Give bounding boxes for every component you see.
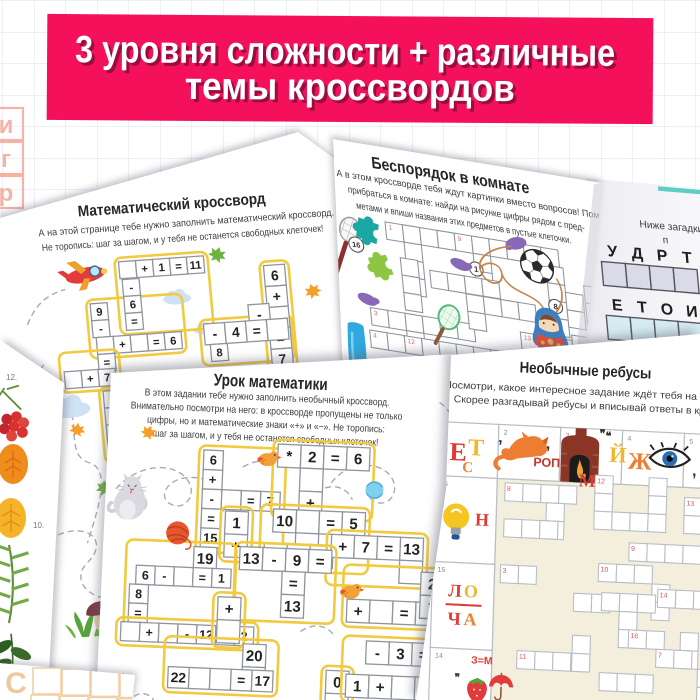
svg-text:Ж: Ж	[627, 449, 652, 476]
svg-text:=: =	[198, 571, 206, 585]
svg-text:,: ,	[498, 429, 503, 446]
svg-text:=: =	[399, 605, 409, 622]
svg-text:+: +	[145, 626, 153, 640]
svg-text:13: 13	[242, 550, 260, 568]
svg-text:6: 6	[129, 299, 136, 311]
svg-text:РОП: РОП	[533, 455, 560, 470]
svg-text:3: 3	[502, 568, 506, 575]
svg-text:12: 12	[597, 478, 605, 485]
svg-text:п: п	[662, 235, 669, 246]
svg-text:6: 6	[142, 568, 150, 582]
svg-text:С: С	[5, 667, 27, 700]
svg-text:+: +	[375, 679, 385, 696]
svg-text:1: 1	[232, 515, 242, 532]
svg-text:г: г	[1, 146, 11, 173]
svg-text:14: 14	[435, 653, 443, 660]
svg-text:Т: Т	[637, 299, 648, 317]
svg-text:,: ,	[546, 436, 551, 453]
svg-text:7: 7	[658, 652, 662, 659]
svg-text:З=М: З=М	[471, 655, 493, 667]
svg-text:О: О	[660, 301, 674, 319]
svg-text:6: 6	[210, 452, 218, 467]
svg-text:1: 1	[158, 262, 165, 274]
svg-text:1: 1	[353, 678, 363, 695]
svg-text:5: 5	[689, 439, 693, 446]
svg-text:+: +	[224, 601, 234, 618]
svg-text:Л: Л	[448, 580, 463, 601]
svg-text:22: 22	[170, 669, 186, 686]
svg-text:С: С	[462, 460, 473, 477]
svg-text:6: 6	[354, 451, 363, 468]
svg-text:❞: ❞	[454, 673, 460, 684]
svg-text:А: А	[463, 609, 477, 630]
svg-text:И: И	[685, 303, 698, 321]
svg-text:=: =	[330, 450, 340, 467]
svg-text:11: 11	[189, 259, 202, 272]
svg-text:9: 9	[293, 553, 302, 570]
svg-text:10: 10	[276, 513, 294, 531]
svg-text:+: +	[272, 288, 282, 305]
svg-text:=: =	[207, 511, 215, 526]
svg-text:=: =	[384, 540, 394, 557]
svg-text:Т: Т	[681, 250, 692, 268]
svg-text:8: 8	[216, 347, 223, 359]
svg-text:-: -	[162, 569, 167, 583]
svg-text:11: 11	[519, 654, 527, 661]
svg-text:14: 14	[660, 592, 668, 599]
svg-text:12: 12	[407, 338, 415, 346]
svg-text:и: и	[0, 112, 13, 139]
svg-text:Й: Й	[609, 442, 627, 468]
svg-text:10.: 10.	[33, 521, 44, 530]
svg-text:17: 17	[254, 673, 270, 690]
svg-text:16: 16	[352, 240, 361, 250]
svg-text:Е: Е	[611, 297, 623, 315]
svg-text:+: +	[338, 538, 348, 555]
svg-text:13: 13	[403, 541, 421, 559]
svg-text:7: 7	[104, 372, 111, 384]
svg-text:Т: Т	[468, 435, 485, 462]
svg-text:=: =	[252, 322, 262, 339]
svg-text:1: 1	[218, 572, 226, 586]
svg-text:Д: Д	[631, 245, 644, 263]
svg-text:-: -	[209, 491, 214, 506]
svg-text:20: 20	[245, 648, 263, 666]
svg-text:Р: Р	[656, 247, 668, 265]
svg-text:2: 2	[504, 430, 508, 437]
svg-text:-: -	[185, 627, 190, 641]
svg-text:2: 2	[308, 449, 317, 466]
svg-text:15: 15	[437, 567, 445, 574]
svg-text:р: р	[0, 180, 13, 207]
svg-text:М: М	[578, 470, 596, 491]
svg-text:13: 13	[524, 334, 532, 342]
svg-text:=: =	[237, 672, 246, 688]
svg-text:О: О	[464, 581, 479, 602]
svg-text:Ч: Ч	[447, 608, 461, 629]
svg-text:4: 4	[627, 436, 631, 443]
svg-text:Н: Н	[475, 509, 490, 530]
svg-text:темы кроссвордов: темы кроссвордов	[185, 66, 515, 110]
svg-text:❝: ❝	[605, 431, 611, 443]
svg-text:=: =	[315, 554, 325, 571]
svg-text:16: 16	[630, 633, 638, 640]
svg-text:=: =	[247, 493, 255, 508]
svg-text:8: 8	[507, 486, 511, 493]
svg-text:-: -	[271, 552, 277, 569]
svg-text:-: -	[375, 645, 381, 662]
svg-text:13: 13	[686, 501, 694, 508]
svg-text:9: 9	[96, 306, 103, 318]
svg-text:7: 7	[361, 539, 370, 556]
svg-text:*: *	[286, 448, 293, 465]
svg-text:12.: 12.	[6, 373, 17, 382]
svg-text:=: =	[288, 575, 298, 592]
svg-text:6: 6	[170, 335, 177, 347]
svg-text:,: ,	[692, 463, 697, 480]
svg-text:3: 3	[396, 646, 405, 663]
svg-text:10: 10	[600, 566, 608, 573]
svg-text:8: 8	[135, 587, 143, 601]
svg-text:+: +	[353, 603, 363, 620]
svg-text:9: 9	[631, 546, 635, 553]
svg-text:+: +	[209, 472, 217, 487]
svg-text:13: 13	[283, 598, 301, 616]
svg-text:19: 19	[196, 551, 214, 569]
